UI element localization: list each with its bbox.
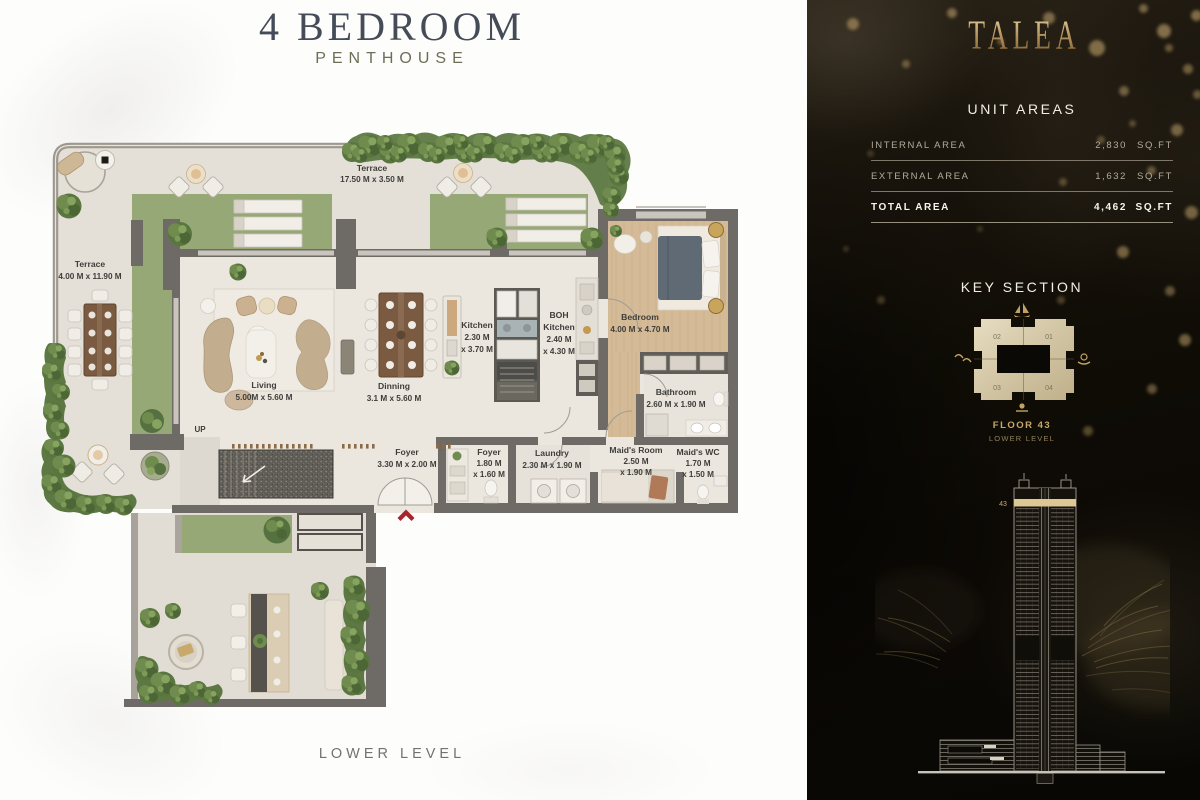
- svg-text:3.30 M x 2.00 M: 3.30 M x 2.00 M: [377, 460, 436, 469]
- svg-text:5.00M x 5.60 M: 5.00M x 5.60 M: [236, 393, 293, 402]
- svg-text:2.60 M x 1.90 M: 2.60 M x 1.90 M: [646, 400, 705, 409]
- svg-text:1.80 M: 1.80 M: [476, 459, 501, 468]
- svg-text:Bathroom: Bathroom: [656, 387, 697, 397]
- svg-text:2.30 M: 2.30 M: [464, 333, 489, 342]
- svg-text:2.30 M x 1.90 M: 2.30 M x 1.90 M: [522, 461, 581, 470]
- svg-text:17.50 M x 3.50 M: 17.50 M x 3.50 M: [340, 175, 404, 184]
- svg-text:Maid's WC: Maid's WC: [676, 447, 719, 457]
- svg-text:Kitchen: Kitchen: [543, 322, 575, 332]
- svg-text:x 4.30 M: x 4.30 M: [543, 347, 575, 356]
- svg-text:1.70 M: 1.70 M: [685, 459, 710, 468]
- svg-text:43: 43: [999, 501, 1007, 508]
- svg-text:UP: UP: [194, 425, 206, 434]
- svg-text:Living: Living: [251, 380, 276, 390]
- svg-text:3.1 M x 5.60 M: 3.1 M x 5.60 M: [367, 394, 422, 403]
- svg-text:x 1.90 M: x 1.90 M: [620, 468, 652, 477]
- svg-text:x 1.50 M: x 1.50 M: [682, 470, 714, 479]
- svg-text:Laundry: Laundry: [535, 448, 569, 458]
- svg-text:Dinning: Dinning: [378, 381, 410, 391]
- svg-text:01: 01: [1045, 334, 1053, 341]
- svg-text:BOH: BOH: [549, 310, 568, 320]
- svg-text:Bedroom: Bedroom: [621, 312, 659, 322]
- svg-text:Foyer: Foyer: [395, 447, 419, 457]
- svg-text:04: 04: [1045, 385, 1053, 392]
- svg-text:Kitchen: Kitchen: [461, 320, 493, 330]
- svg-text:x 1.60 M: x 1.60 M: [473, 470, 505, 479]
- svg-text:4.00 M x 4.70 M: 4.00 M x 4.70 M: [610, 325, 669, 334]
- svg-text:2.40 M: 2.40 M: [546, 335, 571, 344]
- svg-text:02: 02: [993, 334, 1001, 341]
- svg-text:Terrace: Terrace: [75, 259, 106, 269]
- svg-text:Terrace: Terrace: [357, 163, 388, 173]
- svg-text:Foyer: Foyer: [477, 447, 501, 457]
- svg-text:x 3.70 M: x 3.70 M: [461, 345, 493, 354]
- svg-text:4.00 M x 11.90 M: 4.00 M x 11.90 M: [58, 272, 121, 281]
- svg-text:03: 03: [993, 385, 1001, 392]
- svg-text:2.50 M: 2.50 M: [623, 457, 648, 466]
- svg-text:Maid's Room: Maid's Room: [609, 445, 662, 455]
